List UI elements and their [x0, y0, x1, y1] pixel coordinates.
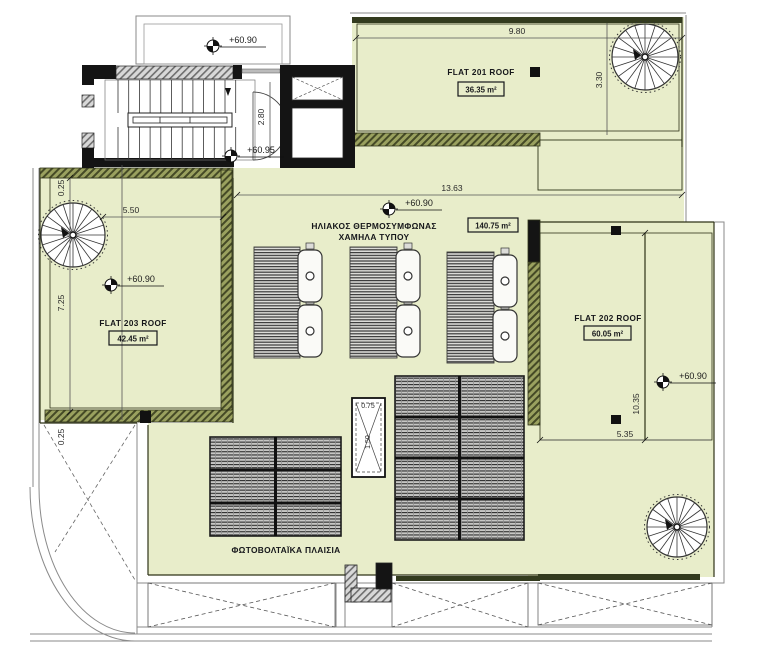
dim-3-30: 3.30	[594, 71, 604, 88]
flat201-name: FLAT 201 ROOF	[447, 68, 514, 77]
dim-9-80: 9.80	[509, 26, 526, 36]
dim-0-25-bottom: 0.25	[56, 428, 66, 445]
flat203-area: 42.45 m²	[117, 335, 149, 344]
flat203-name: FLAT 203 ROOF	[99, 319, 166, 328]
elev-flat203: +60.90	[127, 274, 155, 284]
dim-0-25-top: 0.25	[56, 179, 66, 196]
dim-0-75: 0.75	[361, 403, 375, 410]
flat202-name: FLAT 202 ROOF	[574, 314, 641, 323]
solar-heater-label-line2: ΧΑΜΗΛΑ ΤΥΠΟΥ	[339, 232, 410, 242]
courtyard	[44, 425, 135, 580]
flat201-area: 36.35 m²	[465, 86, 497, 95]
elev-stair: +60.95	[247, 145, 275, 155]
dim-10-35: 10.35	[631, 393, 641, 415]
dim-5-50: 5.50	[123, 205, 140, 215]
flat202-area: 60.05 m²	[592, 330, 624, 339]
dim-13-63: 13.63	[441, 183, 463, 193]
solar-collectors	[254, 243, 517, 363]
dim-5-35: 5.35	[617, 429, 634, 439]
elev-landing: +60.90	[229, 35, 257, 45]
roof-plan-canvas: FLAT 201 ROOF 36.35 m² FLAT 203 ROOF 42.…	[0, 0, 768, 652]
stair-block	[82, 65, 355, 168]
dim-2-80: 2.80	[256, 108, 266, 125]
elev-flat202: +60.90	[679, 371, 707, 381]
roof-plan-drawing: FLAT 201 ROOF 36.35 m² FLAT 203 ROOF 42.…	[0, 0, 768, 652]
elevator-shaft	[280, 65, 355, 168]
dim-7-25: 7.25	[56, 294, 66, 311]
elev-central: +60.90	[405, 198, 433, 208]
central-area-label: 140.75 m²	[475, 222, 511, 231]
spiral-stair	[39, 201, 108, 270]
pv-label: ΦΩΤΟΒΟΛΤΑΪΚΑ ΠΛΑΙΣΙΑ	[232, 545, 341, 555]
pergola-strip	[148, 583, 712, 627]
dim-1-50: 1.50	[365, 435, 372, 449]
solar-heater-label-line1: ΗΛΙΑΚΟΣ ΘΕΡΜΟΣΥΜΦΩΝΑΣ	[311, 221, 436, 231]
